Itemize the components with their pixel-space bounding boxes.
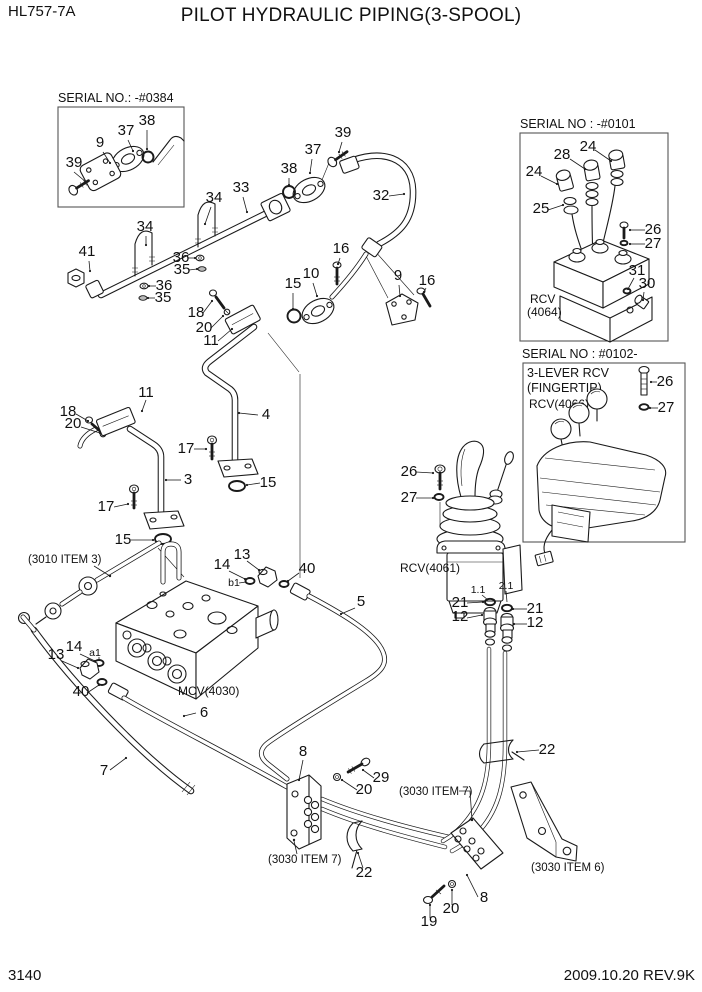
leader-line	[203, 301, 212, 313]
leader-line	[310, 159, 312, 173]
bolt-19-icon	[424, 886, 445, 904]
leader-dot	[423, 291, 425, 293]
leader-dot	[258, 569, 260, 571]
leader-dot	[512, 608, 514, 610]
hose-5	[261, 596, 384, 779]
part-callout-39: 39	[66, 154, 83, 171]
mcv-valve-block	[116, 544, 278, 699]
leader-dot	[466, 874, 468, 876]
leader-dot	[298, 779, 300, 781]
nut-36-washer-35-left	[139, 283, 148, 300]
leader-dot	[403, 193, 405, 195]
bolt-16-icon	[417, 288, 430, 306]
model-code: HL757-7A	[8, 3, 76, 20]
serial-0102-label: SERIAL NO : #0102-	[522, 347, 638, 361]
leader-line	[548, 205, 563, 210]
page-number: 3140	[8, 967, 41, 984]
leader-dot	[642, 299, 644, 301]
leader-line	[142, 400, 146, 411]
oring-15-icon	[229, 481, 245, 491]
part-callout-15: 15	[115, 531, 132, 548]
leader-line	[467, 875, 478, 897]
part-callout-9: 9	[394, 267, 402, 284]
leader-dot	[432, 497, 434, 499]
part-callout-12: 12	[527, 614, 544, 631]
leader-dot	[99, 432, 101, 434]
leader-line	[218, 329, 232, 341]
bolt-18-icon	[210, 290, 225, 308]
leader-dot	[152, 539, 154, 541]
part-callout-10: 10	[303, 265, 320, 282]
leader-dot	[627, 288, 629, 290]
leader-dot	[562, 204, 564, 206]
plate-9-icon	[386, 294, 418, 325]
part-callout-12: 12	[452, 608, 469, 625]
leader-dot	[244, 578, 246, 580]
part-callout-11: 11	[138, 384, 154, 401]
part-callout-15: 15	[285, 275, 302, 292]
leader-dot	[629, 243, 631, 245]
page-title: PILOT HYDRAULIC PIPING(3-SPOOL)	[181, 5, 522, 26]
part-callout-27: 27	[401, 489, 418, 506]
leader-dot	[246, 211, 248, 213]
manual-page: HL757-7A PILOT HYDRAULIC PIPING(3-SPOOL)…	[0, 0, 702, 992]
leader-dot	[196, 268, 198, 270]
part-callout-20: 20	[356, 781, 373, 798]
part-callout-22: 22	[356, 864, 373, 881]
serial-0101-label: SERIAL NO : -#0101	[520, 117, 636, 131]
washer-20-icon	[449, 881, 456, 888]
bolt-26-icon	[639, 367, 649, 396]
diagram-canvas: HL757-7A PILOT HYDRAULIC PIPING(3-SPOOL)…	[0, 0, 702, 992]
part-callout-11: 11	[203, 332, 219, 349]
part-callout-29: 29	[373, 769, 390, 786]
leader-line	[247, 483, 260, 485]
part-callout-8: 8	[480, 889, 488, 906]
ref-3010-item3: (3010 ITEM 3)	[28, 554, 102, 566]
leader-dot	[432, 472, 434, 474]
leader-dot	[309, 172, 311, 174]
leader-line	[89, 261, 90, 271]
leader-dot	[357, 852, 359, 854]
oring-21-icon	[502, 605, 512, 611]
leader-dot	[211, 300, 213, 302]
oring-14-icon	[246, 578, 255, 584]
leader-dot	[205, 448, 207, 450]
leader-dot	[516, 751, 518, 753]
part-callout-27: 27	[645, 235, 662, 252]
oring-40-icon	[280, 581, 289, 587]
clamp-plate-8-right	[424, 818, 504, 904]
leader-dot	[98, 684, 100, 686]
part-callout-24: 24	[580, 138, 597, 155]
leader-dot	[288, 184, 290, 186]
leader-line	[399, 285, 400, 296]
leader-dot	[362, 769, 364, 771]
leader-line	[467, 615, 482, 618]
revision-text: 2009.10.20 REV.9K	[564, 967, 695, 984]
bolt-17-icon	[130, 485, 139, 508]
part-callout-13: 13	[234, 546, 251, 563]
leader-dot	[87, 420, 89, 422]
part-callout-15: 15	[260, 474, 277, 491]
leader-dot	[127, 503, 129, 505]
leader-dot	[341, 779, 343, 781]
leader-line	[416, 472, 433, 473]
fingertip-title-1: 3-LEVER RCV	[527, 366, 610, 380]
leader-dot	[238, 412, 240, 414]
leader-dot	[231, 328, 233, 330]
pipe-33-assembly	[68, 193, 291, 300]
part-callout-30: 30	[639, 275, 656, 292]
part-callout-13: 13	[48, 646, 65, 663]
bolt-29-icon	[346, 757, 371, 775]
washer-27-icon	[435, 494, 444, 500]
part-callout-32: 32	[373, 187, 390, 204]
mcv-4030-label: MCV(4030)	[178, 684, 239, 698]
leader-dot	[287, 580, 289, 582]
part-callout-16: 16	[333, 240, 350, 257]
part-callout-35: 35	[155, 289, 172, 306]
washer-27-icon	[621, 241, 628, 245]
leader-dot	[132, 150, 134, 152]
part-callout-38: 38	[281, 160, 298, 177]
leader-dot	[340, 613, 342, 615]
leader-dot	[451, 889, 453, 891]
rcv-4064-label-2: (4064)	[527, 305, 562, 319]
leader-line	[211, 316, 223, 328]
leader-dot	[183, 715, 185, 717]
leader-line	[110, 758, 126, 770]
leader-dot	[146, 148, 148, 150]
leader-dot	[145, 244, 147, 246]
leader-dot	[94, 660, 96, 662]
part-callout-39: 39	[335, 124, 352, 141]
leader-dot	[610, 160, 612, 162]
leader-line	[517, 750, 539, 752]
fitting-port-21	[501, 605, 514, 651]
leader-line	[389, 194, 404, 196]
leader-dot	[77, 667, 79, 669]
leader-dot	[141, 410, 143, 412]
leader-line	[341, 608, 355, 614]
leader-dot	[629, 229, 631, 231]
part-callout-17: 17	[98, 498, 115, 515]
leader-dot	[148, 285, 150, 287]
part-callout-38: 38	[139, 112, 156, 129]
part-callout-5: 5	[357, 593, 365, 610]
leader-line	[570, 159, 585, 169]
part-callout-34: 34	[137, 218, 154, 235]
ref-3030-item7-left: (3030 ITEM 7)	[268, 854, 342, 866]
leader-dot	[338, 151, 340, 153]
washer-27-icon	[640, 404, 649, 410]
inset-flange-box: SERIAL NO.: -#0384	[58, 91, 184, 207]
leader-dot	[246, 484, 248, 486]
plug-41-icon	[68, 269, 104, 298]
part-callout-40: 40	[299, 560, 316, 577]
leader-dot	[337, 263, 339, 265]
oring-15-icon	[288, 310, 301, 323]
leader-dot	[85, 181, 87, 183]
pipe-4-assembly	[205, 290, 261, 491]
leader-line	[205, 207, 211, 224]
part-callout-6: 6	[200, 704, 208, 721]
rcv-4064-label-1: RCV	[530, 292, 555, 306]
leader-line	[239, 413, 258, 415]
leader-dot	[650, 381, 652, 383]
part-callout-41: 41	[79, 243, 96, 260]
part-callout-28: 28	[554, 146, 571, 163]
inset-rcv3lever-art: RCV (4064)	[527, 149, 652, 342]
leader-line	[114, 504, 128, 507]
bolt-16-icon	[333, 262, 341, 284]
bolt-26-icon	[620, 222, 628, 238]
port-21-label: 2.1	[499, 580, 514, 592]
bolt-17-icon	[208, 436, 217, 459]
leader-line	[243, 197, 247, 212]
leader-dot	[429, 904, 431, 906]
leader-line	[339, 142, 342, 152]
part-callout-19: 19	[421, 913, 438, 930]
bolt-26-icon	[435, 465, 445, 489]
leader-dot	[222, 315, 224, 317]
leader-dot	[399, 295, 401, 297]
leader-line	[184, 713, 196, 716]
part-callout-35: 35	[174, 261, 191, 278]
part-callout-20: 20	[443, 900, 460, 917]
part-callout-25: 25	[533, 200, 550, 217]
part-callout-3: 3	[184, 471, 192, 488]
part-callout-37: 37	[118, 122, 135, 139]
part-callout-26: 26	[657, 373, 674, 390]
part-callout-7: 7	[100, 762, 108, 779]
port-11-label: 1.1	[471, 584, 486, 596]
ref-3030-item6: (3030 ITEM 6)	[531, 862, 605, 874]
part-callout-34: 34	[206, 189, 223, 206]
rcv-4061-label: RCV(4061)	[400, 561, 460, 575]
part-callout-4: 4	[262, 406, 270, 423]
leader-dot	[147, 297, 149, 299]
part-callout-22: 22	[539, 741, 556, 758]
serial-0384-label: SERIAL NO.: -#0384	[58, 91, 174, 105]
leader-dot	[165, 479, 167, 481]
inset-flange-art	[67, 136, 184, 196]
leader-dot	[556, 183, 558, 185]
part-callout-27: 27	[658, 399, 675, 416]
part-callout-24: 24	[526, 163, 543, 180]
leader-line	[288, 573, 299, 581]
part-callout-14: 14	[214, 556, 231, 573]
pipe-3-assembly	[80, 407, 184, 544]
leader-dot	[649, 407, 651, 409]
part-callout-33: 33	[233, 179, 250, 196]
leader-dot	[481, 614, 483, 616]
hose-bundle	[322, 649, 505, 851]
part-callout-14: 14	[66, 638, 83, 655]
leader-line	[299, 760, 303, 780]
part-callout-40: 40	[73, 683, 90, 700]
leader-dot	[194, 257, 196, 259]
part-callout-20: 20	[65, 415, 82, 432]
washer-20-icon	[334, 774, 341, 781]
part-callout-9: 9	[96, 134, 104, 151]
part-callout-16: 16	[419, 272, 436, 289]
port-b1-label: b1	[228, 577, 240, 589]
part-callout-26: 26	[401, 463, 418, 480]
leader-dot	[204, 223, 206, 225]
leader-line	[313, 283, 317, 296]
support-bracket	[511, 782, 577, 861]
leader-dot	[316, 295, 318, 297]
ref-3030-item7-right: (3030 ITEM 7)	[399, 786, 473, 798]
part-callout-37: 37	[305, 141, 322, 158]
leader-dot	[109, 162, 111, 164]
leader-dot	[89, 270, 91, 272]
part-callout-8: 8	[299, 743, 307, 760]
connector-11-icon	[225, 305, 261, 335]
leader-dot	[125, 757, 127, 759]
part-callout-17: 17	[178, 440, 195, 457]
rcv-joystick	[435, 441, 523, 651]
leader-line	[541, 176, 557, 184]
leader-dot	[584, 168, 586, 170]
leader-dot	[513, 623, 515, 625]
leader-dot	[292, 308, 294, 310]
cable-tie-22-center	[347, 821, 362, 868]
leader-dot	[482, 601, 484, 603]
